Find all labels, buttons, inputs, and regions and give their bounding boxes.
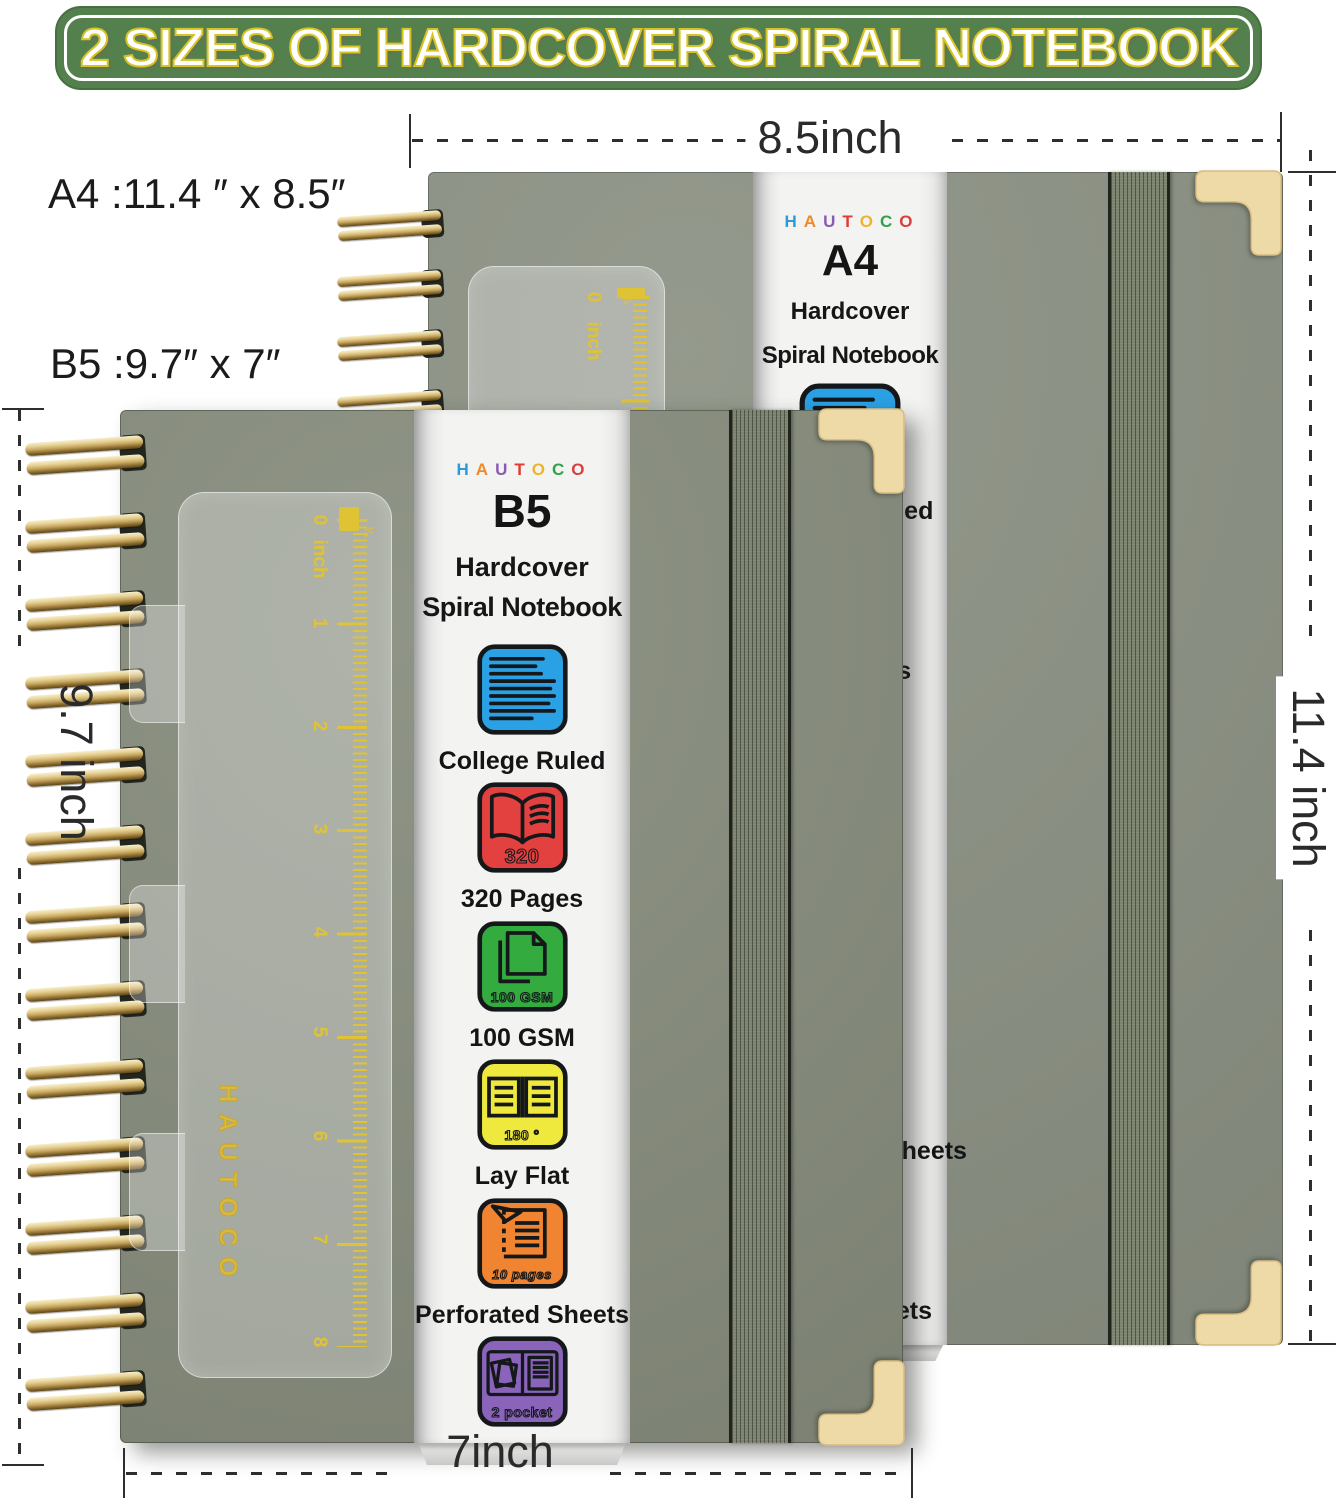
spiral-coil bbox=[25, 509, 177, 559]
dim-tick bbox=[1288, 171, 1336, 173]
ruler-number: 0 bbox=[582, 292, 604, 303]
ruler-number: 8 bbox=[308, 1337, 330, 1348]
type-line: Spiral Notebook bbox=[753, 342, 947, 370]
cover-logo-embossed: HAUTOCO bbox=[213, 1085, 242, 1288]
dim-line-top bbox=[412, 139, 748, 142]
elastic-band-b5 bbox=[729, 410, 791, 1443]
dim-line-left bbox=[18, 410, 21, 660]
model-label-a4: A4 bbox=[753, 236, 947, 286]
dim-tick bbox=[123, 1448, 125, 1498]
dim-tick bbox=[2, 1464, 44, 1466]
bookmark-tab bbox=[129, 1133, 185, 1251]
feature-320-pages: 320 320 Pages bbox=[414, 781, 630, 914]
ruler-number: 1 bbox=[308, 618, 330, 629]
feature-label: Lay Flat bbox=[414, 1162, 630, 1191]
elastic-band-a4 bbox=[1108, 172, 1170, 1345]
ruler-number: 4 bbox=[308, 927, 330, 938]
size-label-a4: A4 :11.4 ″ x 8.5″ bbox=[48, 170, 345, 218]
perforated-icon: 10 pages bbox=[476, 1197, 569, 1290]
brand-letter: T bbox=[514, 460, 527, 479]
dim-tick bbox=[911, 1448, 913, 1498]
dim-tick bbox=[1280, 112, 1282, 172]
spiral-coil bbox=[25, 1289, 177, 1339]
ruler-unit-label: inch bbox=[308, 539, 330, 578]
brand-letter: U bbox=[495, 460, 510, 479]
icon-badge: 10 pages bbox=[476, 1268, 569, 1281]
product-image: 2 SIZES OF HARDCOVER SPIRAL NOTEBOOK ⅛ 0… bbox=[0, 0, 1337, 1500]
title-banner: 2 SIZES OF HARDCOVER SPIRAL NOTEBOOK bbox=[55, 6, 1262, 90]
feature-label: 320 Pages bbox=[414, 885, 630, 914]
brand-letter: C bbox=[552, 460, 567, 479]
brand-letter: A bbox=[804, 212, 819, 231]
ruler-unit-label: inch bbox=[582, 321, 604, 360]
icon-badge: 100 GSM bbox=[476, 990, 569, 1004]
brand-letter: H bbox=[457, 460, 472, 479]
ruler-inch-ticks bbox=[337, 519, 367, 1347]
dim-line-left bbox=[18, 868, 21, 1466]
ruler-number: 2 bbox=[308, 721, 330, 732]
ruler-number: 6 bbox=[308, 1131, 330, 1142]
feature-100-gsm: 100 GSM 100 GSM bbox=[414, 920, 630, 1053]
brand-letter: C bbox=[880, 212, 895, 231]
brand-logo: HAUTOCO bbox=[414, 460, 630, 480]
dim-line-bottom bbox=[126, 1472, 390, 1475]
dim-tick bbox=[2, 408, 44, 410]
dim-tick bbox=[409, 114, 411, 168]
gsm-icon: 100 GSM bbox=[476, 920, 569, 1013]
dim-label-b5-width: 7inch bbox=[434, 1426, 566, 1478]
spiral-coil bbox=[337, 325, 489, 375]
brand-letter: U bbox=[823, 212, 838, 231]
brand-letter: H bbox=[785, 212, 800, 231]
feature-lay-flat: 180 ° Lay Flat bbox=[414, 1058, 630, 1191]
brand-letter: A bbox=[476, 460, 491, 479]
brand-letter: O bbox=[860, 212, 876, 231]
ruler-bookmark-b5: ⅛ 0 inch 1 2 3 4 5 6 7 8 HAUTOCO bbox=[178, 492, 392, 1378]
bookmark-tab bbox=[129, 605, 185, 723]
dim-tick bbox=[1288, 1343, 1336, 1345]
feature-perforated-sheets: 10 pages Perforated Sheets bbox=[414, 1197, 630, 1330]
icon-badge: 320 bbox=[476, 847, 569, 867]
ruler-number: 5 bbox=[308, 1027, 330, 1038]
dim-line-bottom bbox=[610, 1472, 910, 1475]
model-label-b5: B5 bbox=[414, 484, 630, 538]
feature-label: Perforated Sheets bbox=[414, 1301, 630, 1330]
college-ruled-icon bbox=[476, 643, 569, 736]
ruler-number: 3 bbox=[308, 824, 330, 835]
feature-college-ruled: College Ruled bbox=[414, 643, 630, 776]
brand-letter: O bbox=[899, 212, 915, 231]
size-label-b5: B5 :9.7″ x 7″ bbox=[50, 340, 281, 388]
spiral-coil bbox=[337, 265, 489, 315]
spiral-coil bbox=[25, 1055, 177, 1105]
icon-badge: 180 ° bbox=[476, 1128, 569, 1142]
dim-line-top bbox=[952, 139, 1282, 142]
type-line: Hardcover bbox=[414, 552, 630, 583]
title-text: 2 SIZES OF HARDCOVER SPIRAL NOTEBOOK bbox=[57, 8, 1260, 88]
brand-letter: O bbox=[571, 460, 587, 479]
bookmark-tab bbox=[129, 885, 185, 1003]
brand-letter: T bbox=[842, 212, 855, 231]
type-line: Hardcover bbox=[753, 298, 947, 326]
corner-protector-b5-top-right bbox=[817, 408, 905, 494]
pages-icon: 320 bbox=[476, 781, 569, 874]
type-line: Spiral Notebook bbox=[414, 592, 630, 623]
corner-protector-a4-bottom-right bbox=[1194, 1260, 1282, 1346]
feature-label: 100 GSM bbox=[414, 1024, 630, 1053]
lay-flat-icon: 180 ° bbox=[476, 1058, 569, 1151]
ruler-number: 7 bbox=[308, 1234, 330, 1245]
icon-badge: 2 pocket bbox=[476, 1405, 569, 1419]
brand-letter: O bbox=[532, 460, 548, 479]
brand-logo: HAUTOCO bbox=[753, 212, 947, 232]
spiral-coil bbox=[25, 431, 177, 481]
feature-label: College Ruled bbox=[414, 747, 630, 776]
corner-protector-a4-top-right bbox=[1194, 170, 1282, 256]
label-strip-b5: HAUTOCO B5 Hardcover Spiral Notebook Col… bbox=[414, 410, 630, 1443]
notebook-b5: ⅛ 0 inch 1 2 3 4 5 6 7 8 HAUTOCO HAUTOCO… bbox=[120, 410, 903, 1443]
dim-label-a4-height: 11.4 inch bbox=[1276, 676, 1337, 879]
dim-label-b5-height: 9.7 inch bbox=[44, 671, 108, 853]
spiral-coil bbox=[337, 205, 489, 255]
dim-line-right bbox=[1309, 930, 1312, 1342]
spiral-coil bbox=[25, 1367, 177, 1417]
ruler-number: 0 bbox=[308, 515, 330, 526]
dim-label-a4-width: 8.5inch bbox=[745, 112, 914, 164]
corner-protector-b5-bottom-right bbox=[817, 1360, 905, 1446]
dim-line-right bbox=[1309, 150, 1312, 640]
pockets-icon: 2 pocket bbox=[476, 1335, 569, 1428]
